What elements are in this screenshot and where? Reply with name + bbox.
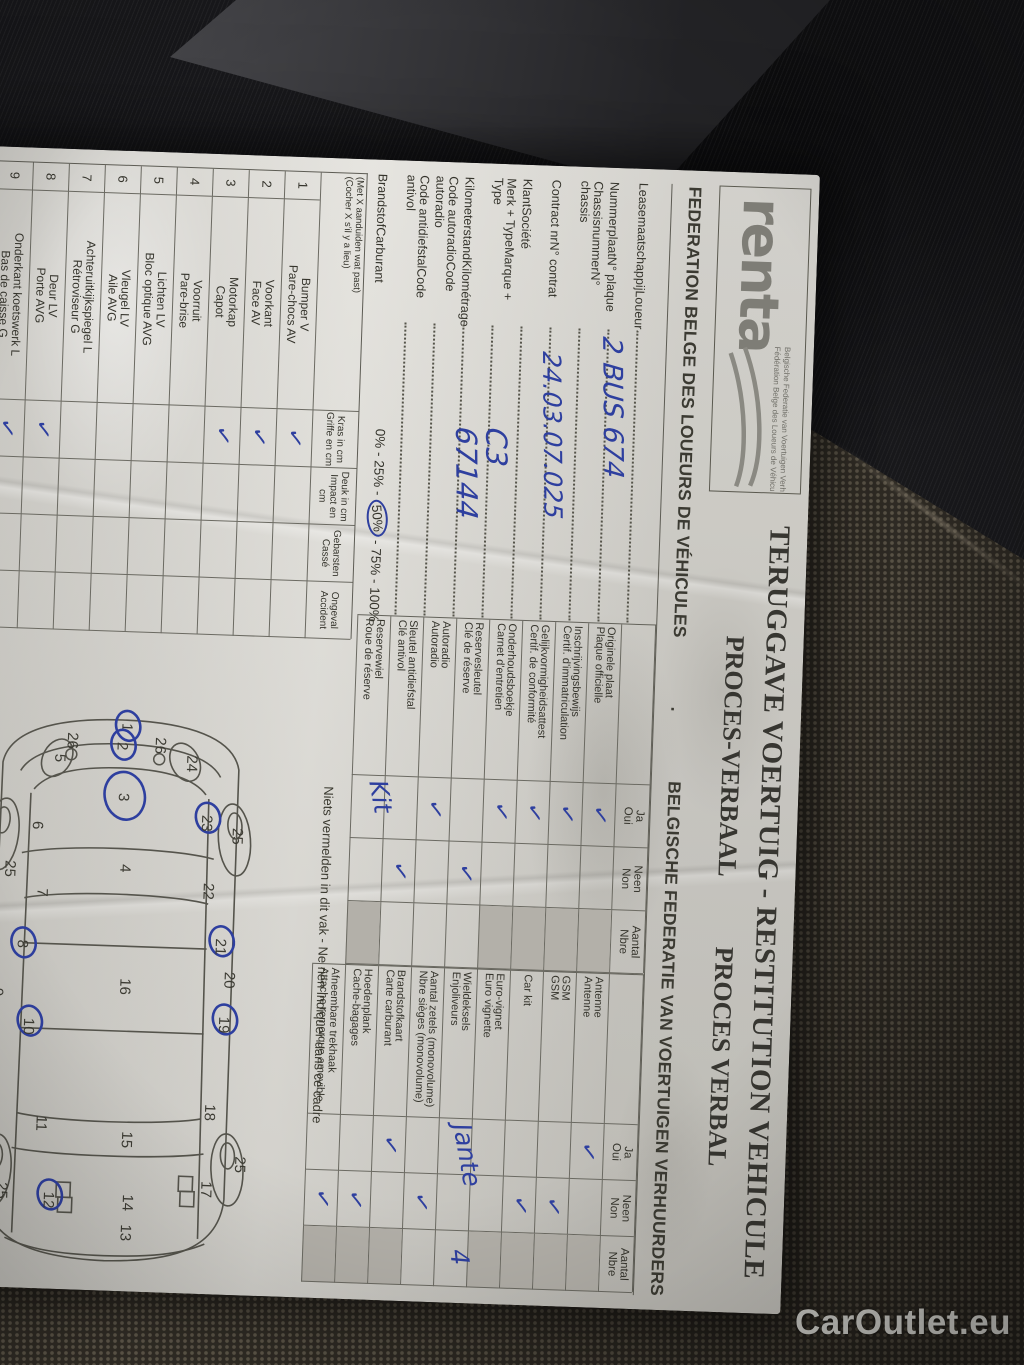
neen-cell <box>512 844 547 908</box>
car-zone-number: 15 <box>118 1131 136 1148</box>
damage-row-label: Lichten LVBloc optique AVG <box>133 194 176 405</box>
renta-return-form-paper: renta Belgische Federatie van Voertuigen… <box>0 144 820 1314</box>
row-label: ReservesleutelClé de réserve <box>451 619 490 780</box>
car-zone-number: 3 <box>115 793 132 802</box>
damage-row-number: 2 <box>248 170 285 199</box>
damage-row-label: Bumper VPare-chocs AV <box>276 199 319 410</box>
car-zone-number: 26 <box>64 732 82 749</box>
field-label: Merk + TypeMarque + Type <box>488 178 518 327</box>
damage-cell <box>235 522 273 580</box>
checkmark-icon: ✓ <box>591 804 607 826</box>
field-label: Code autoradioCode autoradio <box>430 176 460 325</box>
ja-cell: Kit <box>350 775 385 839</box>
damage-cell <box>161 576 199 634</box>
checkmark-icon: ✓ <box>558 803 574 825</box>
column-header: AantalNbre <box>598 1236 634 1293</box>
field-label-text: N° contrat <box>546 241 562 297</box>
federation-nl: BELGISCHE FEDERATIE VAN VOERTUIGEN VERHU… <box>646 781 685 1297</box>
car-zone-number: 13 <box>116 1224 134 1241</box>
documents-table: JaOuiNeenNonAantalNbreOriginele plaatPla… <box>345 614 656 973</box>
neen-cell <box>413 840 448 904</box>
checkmark-icon: ✓ <box>457 862 473 884</box>
row-label: OnderhoudsboekjeCarnet d'entretien <box>484 620 523 781</box>
neen-cell <box>369 1172 404 1229</box>
checkmark-icon: ✓ <box>426 798 442 820</box>
aantal-cell: 4 <box>433 1230 468 1287</box>
handwritten-value: 24.03.07.025 <box>537 350 567 520</box>
row-label: AutoradioAutoradio <box>418 617 457 778</box>
column-header: JaOui <box>613 784 649 848</box>
row-label: GSMGSM <box>538 972 576 1123</box>
column-header: AantalNbre <box>609 910 645 974</box>
neen-cell: ✓ <box>336 1171 371 1228</box>
checkmark-icon: ✓ <box>28 416 58 442</box>
ja-cell <box>404 1117 439 1174</box>
car-zone-number: 8 <box>14 939 31 948</box>
damage-cell <box>55 516 93 574</box>
damage-cell <box>201 464 239 522</box>
row-label: ReservewielRoue de réserve <box>352 615 391 776</box>
damage-row-label: Deur LVPorte AVG <box>25 191 68 402</box>
watermark: CarOutlet.eu <box>795 1303 1011 1343</box>
checkmark-icon: ✓ <box>525 802 541 824</box>
damage-cell <box>89 574 127 632</box>
neen-cell <box>479 843 514 907</box>
handwritten-value: C3 <box>479 426 513 468</box>
checkmark-icon: ✓ <box>511 1194 527 1216</box>
handwritten-value: 67144 <box>449 425 484 521</box>
ja-cell: ✓ <box>514 781 549 845</box>
damage-cell <box>0 456 23 514</box>
aantal-cell <box>411 903 446 967</box>
damage-cell <box>57 459 95 517</box>
damage-cell <box>131 404 169 462</box>
renta-logo: renta Belgische Federatie van Voertuigen… <box>711 187 811 493</box>
damage-row-number: 4 <box>176 168 213 197</box>
field-label-text: Carburant <box>372 227 388 283</box>
car-zone-number: 2 <box>114 742 131 751</box>
aantal-cell <box>301 1226 336 1283</box>
damage-cell: ✓ <box>239 408 277 466</box>
damage-cell <box>17 571 55 629</box>
aantal-cell <box>367 1228 402 1285</box>
damage-cell <box>95 403 133 461</box>
damage-cell: ✓ <box>0 399 25 457</box>
car-zone-number: 5 <box>51 754 68 763</box>
field-label-text: Klant <box>520 179 535 208</box>
car-zone-number: 6 <box>29 821 46 830</box>
checkmark-icon: ✓ <box>579 1140 595 1162</box>
ja-cell: ✓ <box>569 1123 604 1180</box>
damage-cell <box>59 402 97 460</box>
row-label: WieldekselsEnjoliveurs <box>439 968 477 1119</box>
neen-cell: ✓ <box>501 1177 536 1234</box>
car-zone-number: 20 <box>220 972 238 989</box>
aantal-cell <box>565 1235 600 1292</box>
damage-cell <box>167 405 205 463</box>
checkmark-icon: ✓ <box>544 1195 560 1217</box>
ja-cell <box>503 1121 538 1178</box>
fuel-scale: 0% - 25% - 50% - 75% - 100% <box>363 428 391 622</box>
damage-row-number: 9 <box>0 161 33 190</box>
field-label-text: N° plaque <box>604 257 620 313</box>
checkmark-icon: ✓ <box>346 1188 362 1210</box>
handwritten-note: Kit <box>372 779 389 814</box>
car-zone-number: 10 <box>20 1018 38 1035</box>
damage-cell <box>237 465 275 523</box>
damage-cell <box>0 570 19 628</box>
car-zone-number: 25 <box>1 860 19 877</box>
car-zone-number: 25 <box>0 1182 10 1199</box>
ja-cell: Jante <box>437 1118 472 1175</box>
field-label-text: Société <box>519 207 534 249</box>
checkmark-icon: ✓ <box>313 1187 329 1209</box>
damage-cell <box>53 573 91 631</box>
car-zone-number: 24 <box>183 755 201 772</box>
neen-cell: ✓ <box>303 1170 338 1227</box>
aantal-cell <box>444 904 479 968</box>
aantal-cell <box>477 906 512 970</box>
damage-cell <box>273 466 311 524</box>
damage-row-number: 7 <box>68 164 105 193</box>
aantal-cell <box>532 1234 567 1291</box>
damage-row-label: VoorruitPare-brise <box>169 196 212 407</box>
car-zone-number: 21 <box>211 938 229 955</box>
field-label-text: Contract nr <box>548 180 564 242</box>
ja-cell: ✓ <box>371 1116 406 1173</box>
accessories-table: JaOuiNeenNonAantalNbreAntenneAntenne✓GSM… <box>301 963 644 1292</box>
neen-cell: ✓ <box>446 841 481 905</box>
handwritten-count: 4 <box>453 1249 466 1266</box>
damage-cell: ✓ <box>275 409 313 467</box>
row-label: GelijkvormigheidsattestCertif. de confor… <box>517 621 556 782</box>
neen-cell <box>545 845 580 909</box>
damage-cell: ✓ <box>23 400 61 458</box>
car-zone-number: 19 <box>215 1016 233 1033</box>
car-zone-number: 17 <box>197 1181 215 1198</box>
ja-cell <box>449 778 484 842</box>
damage-cell <box>125 575 163 633</box>
row-label: BrandstofkaartCarte carburant <box>373 966 411 1117</box>
field-label-text: Brandstof <box>374 174 390 228</box>
ja-cell <box>338 1115 373 1172</box>
damage-cell <box>93 460 131 518</box>
mirror-dot-icon <box>154 754 165 765</box>
renta-logo-box: renta Belgische Federatie van Voertuigen… <box>709 186 812 495</box>
damage-column-header: Deuk in cmImpact en cm <box>308 467 356 526</box>
federation-fr: FEDERATION BELGE DES LOUEURS DE VÉHICULE… <box>669 186 706 638</box>
damage-cell <box>127 518 165 576</box>
checkmark-icon: ✓ <box>412 1190 428 1212</box>
neen-cell <box>567 1179 602 1236</box>
car-zone-number: 11 <box>32 1115 50 1131</box>
row-label: Aantal zetels (monovolume)Nbre sièges (m… <box>406 967 444 1118</box>
aantal-cell <box>378 902 413 966</box>
row-label: AntenneAntenne <box>571 973 609 1124</box>
ja-cell: ✓ <box>481 780 516 844</box>
damage-cell <box>269 580 307 638</box>
ja-cell: ✓ <box>580 783 615 847</box>
neen-cell: ✓ <box>402 1173 437 1230</box>
column-header: NeenNon <box>611 847 647 911</box>
damage-row-number: 3 <box>212 169 249 198</box>
field-label: Code antidiefstalCode antivol <box>401 175 431 324</box>
field-label-text: Loueur <box>632 290 647 329</box>
damage-table-note: (Met X aanduiden wat past)(Cocher X s'il… <box>312 173 366 412</box>
damage-cell <box>165 462 203 520</box>
damage-row-label: Vleugel LVAile AVG <box>97 193 140 404</box>
damage-cell <box>233 579 271 637</box>
damage-column-header: OngevalAccident <box>305 581 353 640</box>
checkmark-icon: ✓ <box>492 800 508 822</box>
row-label: Sleutel antidiefstalClé antivol <box>385 616 424 777</box>
damage-cell <box>19 514 57 572</box>
damage-cell <box>0 513 21 571</box>
checkmark-icon: ✓ <box>244 424 274 450</box>
row-label: Car kit <box>505 971 543 1122</box>
damage-row-label: MotorkapCapot <box>205 197 248 408</box>
field-label: BrandstofCarburant <box>372 174 390 322</box>
renta-logo-wordmark: renta <box>726 197 794 353</box>
car-zone-number: 18 <box>201 1104 219 1121</box>
ja-cell: ✓ <box>416 777 451 841</box>
damage-row-number: 1 <box>284 171 321 200</box>
neen-cell <box>347 838 382 902</box>
neen-cell <box>578 846 613 910</box>
checkmark-icon: ✓ <box>391 860 407 882</box>
photo-of-vehicle-return-form: renta Belgische Federatie van Voertuigen… <box>0 0 1024 1365</box>
column-header: JaOui <box>602 1124 638 1181</box>
damage-cell <box>91 517 129 575</box>
fuel-circled-value: 50% <box>366 499 390 537</box>
form-title-block: TERUGGAVE VOERTUIG - RESTITUTION VEHICUL… <box>697 504 797 1300</box>
aantal-cell <box>576 909 611 973</box>
checkmark-icon: ✓ <box>208 422 238 448</box>
damage-row-number: 6 <box>104 165 141 194</box>
damage-cell <box>199 521 237 579</box>
subtitle-nl: PROCES-VERBAAL <box>711 635 749 877</box>
neen-cell: ✓ <box>380 839 415 903</box>
car-damage-diagram: 1226262453236422721820169191018111517121… <box>0 690 319 1283</box>
aantal-cell <box>334 1227 369 1284</box>
damage-cell <box>129 461 167 519</box>
damage-cell <box>163 519 201 577</box>
damage-cell: ✓ <box>203 407 241 465</box>
aantal-cell <box>400 1229 435 1286</box>
damage-row-number: 5 <box>140 166 177 195</box>
ja-cell <box>536 1122 571 1179</box>
damage-cell <box>197 578 235 636</box>
checkmark-icon: ✓ <box>280 425 310 451</box>
damage-row-number: 8 <box>32 163 69 192</box>
car-zone-number: 7 <box>33 888 50 897</box>
car-zone-number: 26 <box>151 737 169 754</box>
aantal-cell <box>345 901 380 965</box>
car-zone-number: 25 <box>231 1156 249 1173</box>
field-label: ChassisnummerN° chassis <box>574 181 604 330</box>
car-zone-number: 14 <box>118 1194 136 1211</box>
handwritten-note: Jante <box>456 1123 478 1188</box>
row-label: InschrijvingsbewijsCertif. d'immatricula… <box>550 622 589 783</box>
car-zone-numbers: 1226262453236422721820169191018111517121… <box>0 704 264 1245</box>
neen-cell: ✓ <box>534 1178 569 1235</box>
aantal-cell <box>510 907 545 971</box>
fields-list: LeasemaatschappijLoueurNummerplaatN° pla… <box>361 174 666 624</box>
aantal-cell <box>543 908 578 972</box>
row-label: Originele plaatPlaque officielle <box>583 623 622 784</box>
handwritten-value: 2 BUS 674 <box>596 335 628 479</box>
car-zone-number: 12 <box>39 1191 57 1208</box>
damage-row-label: Achteruitkijkspiegel LRétroviseur G <box>61 192 104 403</box>
damage-cell <box>271 523 309 581</box>
aantal-cell <box>499 1233 534 1290</box>
checkmark-icon: ✓ <box>0 415 22 441</box>
column-header: NeenNon <box>600 1180 636 1237</box>
damage-table: (Met X aanduiden wat past)(Cocher X s'il… <box>0 159 368 639</box>
car-zone-number: 9 <box>0 987 6 996</box>
corner-cell <box>604 974 643 1125</box>
damage-cell <box>21 457 59 515</box>
car-zone-number: 23 <box>198 815 216 832</box>
checkmark-icon: ✓ <box>381 1133 397 1155</box>
federation-separator: . <box>666 706 687 712</box>
taillight-top <box>178 1176 195 1207</box>
car-zone-number: 4 <box>116 864 133 873</box>
car-zone-number: 22 <box>199 883 217 900</box>
ja-cell: ✓ <box>547 782 582 846</box>
row-label: HoedenplankCache-bagages <box>340 965 378 1116</box>
damage-column-header: GebarstenCassé <box>307 524 355 583</box>
damage-column-header: Kras in cmGriffe en cm <box>310 410 358 469</box>
subtitle-fr: PROCES VERBAL <box>701 946 739 1167</box>
damage-row-label: VoorkantFace AV <box>241 198 284 409</box>
corner-cell <box>616 624 656 785</box>
logo-swoosh2-icon <box>726 353 747 486</box>
row-label: Euro-vignetEuro vignette <box>472 970 510 1121</box>
car-zone-number: 25 <box>228 828 246 845</box>
car-zone-number: 16 <box>116 978 134 995</box>
